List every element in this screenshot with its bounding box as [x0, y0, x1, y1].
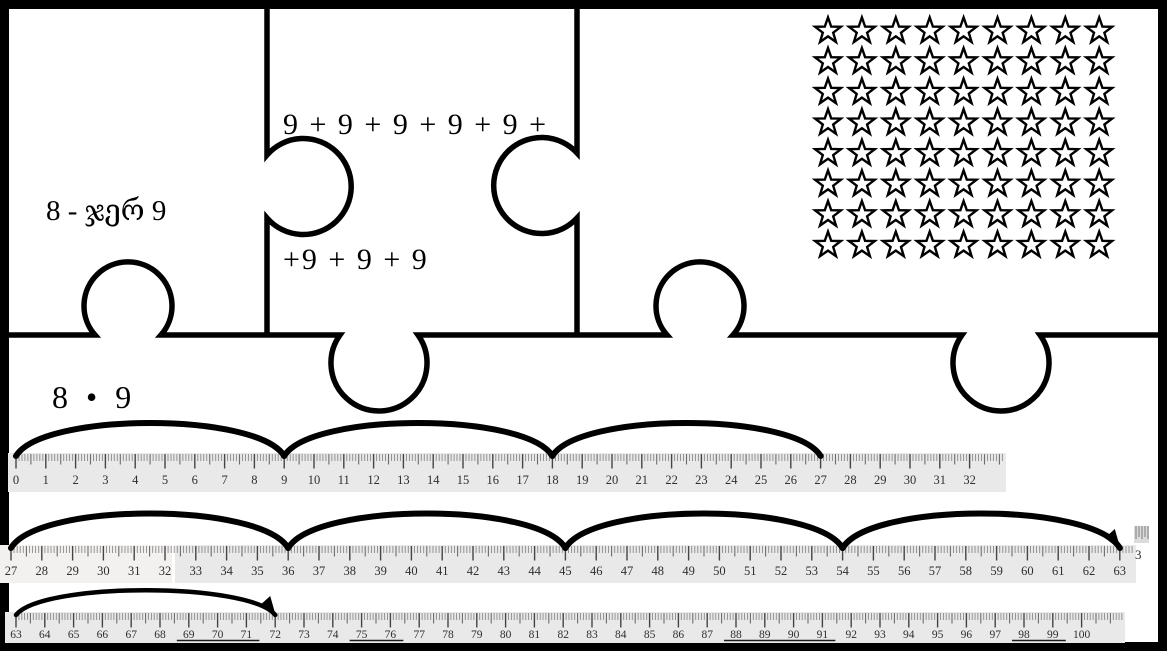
- number-line-2: 2728293031323334353637383940414243444546…: [0, 545, 1136, 583]
- addition-line-1: 9 + 9 + 9 + 9 + 9 +: [283, 102, 548, 147]
- ruler-number: 64: [39, 629, 51, 641]
- ruler-number: 96: [961, 629, 973, 641]
- star-icon: [815, 17, 841, 42]
- ruler-number: 4: [132, 473, 139, 487]
- ruler-number: 19: [576, 473, 589, 487]
- star-icon: [951, 232, 977, 257]
- star-icon: [1019, 140, 1045, 165]
- ruler-number: 43: [498, 564, 511, 578]
- star-icon: [815, 48, 841, 73]
- ruler-number: 27: [5, 564, 18, 578]
- ruler-number: 3: [102, 473, 108, 487]
- ruler-number: 30: [97, 564, 110, 578]
- ruler-number: 90: [788, 629, 800, 641]
- ruler-number: 54: [836, 564, 849, 578]
- star-icon: [985, 17, 1011, 42]
- star-icon: [849, 79, 875, 104]
- star-icon: [985, 109, 1011, 134]
- ruler-number: 55: [867, 564, 880, 578]
- ruler-number: 5: [162, 473, 168, 487]
- jump-arc-18-27: [552, 423, 820, 456]
- star-icon: [815, 109, 841, 134]
- ruler-number: 1: [43, 473, 49, 487]
- jump-arc-9-18: [284, 423, 552, 456]
- ruler-number: 12: [367, 473, 380, 487]
- star-icon: [883, 201, 909, 226]
- star-icon: [849, 109, 875, 134]
- star-icon: [1052, 109, 1078, 134]
- ruler-number: 29: [874, 473, 887, 487]
- star-icon: [985, 170, 1011, 195]
- ruler-number: 24: [725, 473, 738, 487]
- ruler-number: 17: [516, 473, 529, 487]
- ruler-number: 38: [344, 564, 357, 578]
- number-line-1: 0123456789101112131415161718192021222324…: [8, 453, 1006, 492]
- ruler-number: 91: [817, 629, 829, 641]
- ruler-number: 20: [606, 473, 619, 487]
- ruler-number: 57: [929, 564, 942, 578]
- ruler-number: 80: [500, 629, 512, 641]
- ruler-number: 29: [66, 564, 79, 578]
- ruler-number: 36: [282, 564, 295, 578]
- star-icon: [917, 79, 943, 104]
- ruler-number: 58: [960, 564, 973, 578]
- star-icon: [849, 140, 875, 165]
- star-icon: [985, 140, 1011, 165]
- star-icon: [917, 201, 943, 226]
- multiplication-dot-line: 8 • 9: [52, 366, 166, 428]
- star-icon: [1052, 79, 1078, 104]
- ruler-number: 66: [97, 629, 109, 641]
- ruler-number: 37: [313, 564, 326, 578]
- star-icon: [1086, 48, 1112, 73]
- ruler-number: 83: [586, 629, 598, 641]
- star-icon: [1086, 201, 1112, 226]
- ruler-number: 32: [159, 564, 172, 578]
- ruler-number: 85: [644, 629, 656, 641]
- star-icon: [849, 170, 875, 195]
- ruler-number: 31: [128, 564, 141, 578]
- ruler-number: 0: [13, 473, 19, 487]
- star-icon: [883, 48, 909, 73]
- star-icon: [1086, 170, 1112, 195]
- star-icon: [883, 232, 909, 257]
- ruler-number: 35: [251, 564, 264, 578]
- star-icon: [951, 109, 977, 134]
- ruler-number: 7: [221, 473, 227, 487]
- ruler-number: 60: [1021, 564, 1034, 578]
- ruler-number: 63: [10, 629, 22, 641]
- ruler-number: 100: [1073, 629, 1091, 641]
- ruler-number: 78: [442, 629, 454, 641]
- ruler-number: 16: [487, 473, 500, 487]
- star-icon: [917, 232, 943, 257]
- ruler-number: 74: [327, 629, 339, 641]
- star-icon: [951, 140, 977, 165]
- ruler-number: 63: [1114, 564, 1127, 578]
- ruler-number: 44: [528, 564, 541, 578]
- ruler-number: 75: [356, 629, 368, 641]
- ruler-number: 33: [190, 564, 203, 578]
- star-icon: [815, 232, 841, 257]
- ruler-number: 48: [652, 564, 665, 578]
- ruler-number: 28: [36, 564, 49, 578]
- ruler-number: 65: [68, 629, 80, 641]
- star-icon: [985, 232, 1011, 257]
- ruler-number: 77: [413, 629, 425, 641]
- ruler-number: 10: [308, 473, 321, 487]
- ruler-number: 22: [665, 473, 678, 487]
- star-icon: [985, 48, 1011, 73]
- star-icon: [1086, 109, 1112, 134]
- star-icon: [883, 79, 909, 104]
- star-icon: [883, 17, 909, 42]
- ruler-number: 23: [695, 473, 708, 487]
- ruler-number: 18: [546, 473, 559, 487]
- ruler-number: 95: [932, 629, 944, 641]
- ruler-number: 82: [557, 629, 569, 641]
- ruler-fragment: 3: [1132, 526, 1154, 566]
- star-icon: [1019, 17, 1045, 42]
- star-icon: [985, 79, 1011, 104]
- star-icon: [1086, 232, 1112, 257]
- jump-arc-54-63: [843, 514, 1120, 549]
- star-icon: [815, 140, 841, 165]
- ruler-number: 40: [405, 564, 418, 578]
- star-icon: [883, 109, 909, 134]
- ruler-number: 70: [212, 629, 224, 641]
- ruler-number: 98: [1018, 629, 1030, 641]
- piece-addition: 9 + 9 + 9 + 9 + 9 + +9 + 9 + 9: [283, 12, 548, 372]
- star-array: [810, 13, 1118, 265]
- multiplication-words-line: 8 - ჯერ 9: [46, 180, 166, 242]
- ruler-number: 13: [397, 473, 410, 487]
- ruler-number: 99: [1047, 629, 1059, 641]
- ruler-number: 81: [529, 629, 541, 641]
- ruler-number: 26: [785, 473, 798, 487]
- star-icon: [1019, 170, 1045, 195]
- star-icon: [1086, 140, 1112, 165]
- ruler-number: 59: [990, 564, 1003, 578]
- star-icon: [985, 201, 1011, 226]
- ruler-number: 51: [744, 564, 757, 578]
- star-icon: [951, 48, 977, 73]
- pieces-bottom-edge: [8, 262, 1160, 411]
- star-icon: [1019, 232, 1045, 257]
- ruler-number: 8: [251, 473, 257, 487]
- star-icon: [883, 140, 909, 165]
- worksheet-canvas: 8 - ჯერ 9 8 • 9 9 + 9 + 9 + 9 + 9 + +9 +…: [0, 0, 1167, 651]
- ruler-number: 61: [1052, 564, 1065, 578]
- ruler-number: 97: [989, 629, 1001, 641]
- ruler-number: 25: [755, 473, 768, 487]
- ruler-number: 39: [374, 564, 387, 578]
- ruler-number: 47: [621, 564, 634, 578]
- addition-line-2: +9 + 9 + 9: [283, 237, 548, 282]
- ruler-number: 32: [963, 473, 976, 487]
- star-icon: [815, 170, 841, 195]
- jump-arc-36-45: [288, 514, 565, 549]
- ruler-number: 6: [192, 473, 198, 487]
- ruler-number: 72: [269, 629, 281, 641]
- star-icon: [815, 201, 841, 226]
- star-icon: [1052, 140, 1078, 165]
- ruler-number: 62: [1083, 564, 1096, 578]
- ruler-number: 9: [281, 473, 287, 487]
- star-icon: [917, 170, 943, 195]
- ruler-number: 31: [934, 473, 947, 487]
- star-icon: [1086, 17, 1112, 42]
- ruler-number: 84: [615, 629, 627, 641]
- star-grid: [810, 13, 1118, 265]
- star-icon: [1019, 48, 1045, 73]
- ruler-number: 88: [730, 629, 742, 641]
- star-icon: [849, 17, 875, 42]
- star-icon: [1052, 17, 1078, 42]
- star-icon: [1052, 170, 1078, 195]
- star-icon: [951, 170, 977, 195]
- ruler-number: 46: [590, 564, 603, 578]
- ruler-number: 89: [759, 629, 771, 641]
- ruler-number: 69: [183, 629, 195, 641]
- ruler-number: 86: [673, 629, 685, 641]
- ruler-number: 30: [904, 473, 917, 487]
- ruler-number: 11: [338, 473, 350, 487]
- ruler-number: 14: [427, 473, 440, 487]
- ruler-number: 73: [298, 629, 310, 641]
- star-icon: [917, 17, 943, 42]
- ruler-number: 34: [220, 564, 233, 578]
- star-icon: [815, 79, 841, 104]
- star-icon: [1052, 232, 1078, 257]
- number-line-3: 6364656667686970717273747576777879808182…: [5, 612, 1125, 643]
- ruler-number: 27: [814, 473, 827, 487]
- ruler-number: 79: [471, 629, 483, 641]
- star-icon: [849, 201, 875, 226]
- ruler-number: 56: [898, 564, 911, 578]
- star-icon: [1019, 109, 1045, 134]
- star-icon: [1052, 48, 1078, 73]
- star-icon: [849, 232, 875, 257]
- star-icon: [1019, 79, 1045, 104]
- ruler-number: 67: [125, 629, 137, 641]
- fragment-label: 3: [1135, 547, 1142, 562]
- star-icon: [849, 48, 875, 73]
- ruler-number: 15: [457, 473, 470, 487]
- ruler-number: 93: [874, 629, 886, 641]
- star-icon: [917, 109, 943, 134]
- star-icon: [951, 201, 977, 226]
- ruler-number: 53: [806, 564, 819, 578]
- ruler-number: 28: [844, 473, 857, 487]
- star-icon: [1086, 79, 1112, 104]
- ruler-number: 92: [845, 629, 857, 641]
- ruler-number: 41: [436, 564, 449, 578]
- jump-arc-45-54: [565, 514, 842, 549]
- ruler-number: 87: [701, 629, 713, 641]
- ruler-number: 2: [72, 473, 78, 487]
- ruler-number: 94: [903, 629, 915, 641]
- ruler-number: 71: [241, 629, 253, 641]
- ruler-number: 76: [385, 629, 397, 641]
- star-icon: [917, 48, 943, 73]
- star-icon: [951, 79, 977, 104]
- ruler-number: 50: [713, 564, 726, 578]
- ruler-number: 21: [636, 473, 649, 487]
- star-icon: [883, 170, 909, 195]
- ruler-number: 49: [682, 564, 695, 578]
- ruler-number: 52: [775, 564, 788, 578]
- ruler-number: 42: [467, 564, 480, 578]
- star-icon: [917, 140, 943, 165]
- star-icon: [1052, 201, 1078, 226]
- ruler-number: 45: [559, 564, 572, 578]
- star-icon: [1019, 201, 1045, 226]
- ruler-number: 68: [154, 629, 166, 641]
- star-icon: [951, 17, 977, 42]
